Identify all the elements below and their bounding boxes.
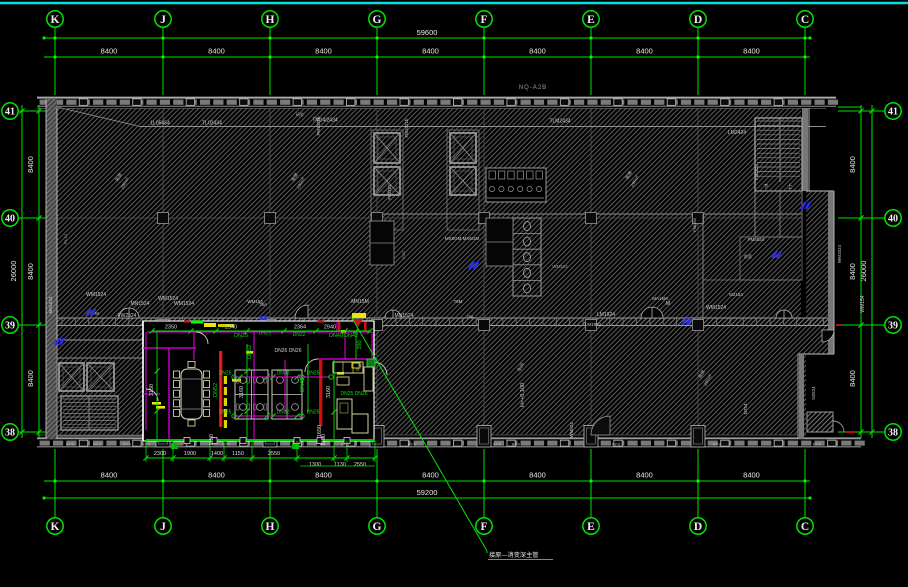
- svg-text:BY-0: BY-0: [341, 443, 349, 447]
- svg-text:3160: 3160: [326, 386, 332, 398]
- svg-text:M2154: M2154: [729, 292, 743, 297]
- svg-text:J: J: [160, 521, 166, 533]
- svg-text:3160: 3160: [239, 386, 245, 398]
- svg-text:WM524: WM524: [552, 264, 568, 269]
- svg-text:DN25: DN25: [307, 371, 320, 377]
- svg-text:H: H: [266, 521, 275, 533]
- svg-text:BY-0: BY-0: [66, 443, 74, 447]
- svg-text:FM2624: FM2624: [748, 237, 765, 242]
- svg-text:TLM2434: TLM2434: [549, 119, 570, 125]
- svg-text:上: 上: [787, 183, 792, 190]
- svg-text:MN15M: MN15M: [351, 299, 369, 305]
- svg-text:DN32: DN32: [293, 332, 306, 338]
- svg-text:8400: 8400: [26, 370, 35, 387]
- svg-text:BY-0: BY-0: [222, 443, 230, 447]
- svg-text:1300: 1300: [309, 462, 321, 468]
- svg-text:BY-0: BY-0: [493, 443, 501, 447]
- svg-text:DN25: DN25: [307, 410, 320, 416]
- svg-text:MA15M: MA15M: [652, 296, 668, 301]
- svg-text:下: 下: [763, 184, 768, 190]
- svg-text:FW2: FW2: [401, 250, 406, 259]
- svg-text:DN26 DN26: DN26 DN26: [275, 348, 302, 354]
- svg-text:8400: 8400: [848, 263, 857, 280]
- svg-text:M: M: [95, 311, 99, 316]
- svg-text:40: 40: [888, 214, 898, 225]
- svg-text:2540: 2540: [225, 325, 237, 331]
- svg-text:NQ-A2B: NQ-A2B: [519, 85, 547, 91]
- svg-text:26000: 26000: [9, 261, 18, 282]
- svg-text:LM2424: LM2424: [728, 130, 746, 136]
- svg-text:8400: 8400: [208, 471, 225, 480]
- svg-text:BY-0: BY-0: [408, 443, 416, 447]
- svg-text:39: 39: [888, 321, 898, 332]
- svg-text:1900: 1900: [184, 451, 196, 457]
- svg-text:DN25: DN25: [219, 410, 232, 416]
- svg-text:WM154: WM154: [247, 299, 263, 304]
- svg-text:D: D: [694, 14, 702, 26]
- svg-text:38: 38: [888, 428, 898, 439]
- svg-text:G: G: [373, 521, 382, 533]
- svg-text:8400: 8400: [636, 471, 653, 480]
- svg-text:38: 38: [5, 428, 15, 439]
- svg-text:8400: 8400: [422, 471, 439, 480]
- svg-text:BY-0: BY-0: [142, 443, 150, 447]
- svg-text:2550: 2550: [268, 451, 280, 457]
- svg-text:8400: 8400: [848, 156, 857, 173]
- svg-text:1L05454: 1L05454: [150, 121, 170, 127]
- svg-text:BY-0: BY-0: [813, 443, 821, 447]
- svg-text:D: D: [694, 521, 702, 533]
- svg-text:C: C: [801, 521, 809, 533]
- svg-text:BY-0: BY-0: [512, 443, 520, 447]
- svg-text:TL02434: TL02434: [202, 121, 222, 127]
- svg-text:41: 41: [888, 107, 898, 118]
- svg-text:N754: N754: [743, 403, 748, 414]
- svg-text:DN25: DN25: [234, 333, 248, 339]
- svg-text:WM1524: WM1524: [158, 296, 178, 302]
- svg-text:LM1924: LM1924: [585, 322, 602, 327]
- svg-text:FM1021b: FM1021b: [316, 116, 321, 136]
- svg-text:BY-0: BY-0: [93, 443, 101, 447]
- svg-text:F: F: [480, 14, 487, 26]
- svg-text:8400: 8400: [422, 47, 439, 56]
- svg-text:WM154: WM154: [860, 295, 866, 312]
- svg-text:FM1825: FM1825: [754, 164, 759, 180]
- svg-text:8400: 8400: [636, 47, 653, 56]
- svg-text:2300: 2300: [154, 451, 166, 457]
- svg-text:39: 39: [5, 321, 15, 332]
- svg-text:DN25 DN26: DN25 DN26: [341, 391, 368, 397]
- svg-text:8400: 8400: [743, 471, 760, 480]
- svg-text:41: 41: [5, 107, 15, 118]
- svg-text:8400: 8400: [26, 263, 35, 280]
- svg-text:2940: 2940: [324, 325, 336, 331]
- svg-text:DN52: DN52: [213, 383, 219, 397]
- svg-text:LM1924: LM1924: [597, 312, 615, 318]
- svg-text:40: 40: [5, 214, 15, 225]
- svg-text:8400: 8400: [101, 471, 118, 480]
- svg-text:8400: 8400: [529, 47, 546, 56]
- svg-text:1150: 1150: [321, 434, 327, 446]
- svg-text:C: C: [801, 14, 809, 26]
- svg-text:M: M: [666, 301, 670, 307]
- svg-text:DN32: DN32: [277, 371, 290, 377]
- svg-text:H: H: [266, 14, 275, 26]
- svg-text:N2524: N2524: [811, 386, 816, 400]
- svg-text:BY-0: BY-0: [713, 443, 721, 447]
- svg-text:2550: 2550: [354, 462, 366, 468]
- svg-text:8400: 8400: [315, 471, 332, 480]
- svg-text:J: J: [160, 14, 166, 26]
- svg-text:1150: 1150: [209, 434, 215, 446]
- svg-text:K: K: [51, 521, 60, 533]
- svg-text:MN1524: MN1524: [131, 301, 150, 307]
- svg-text:前室: 前室: [744, 253, 752, 259]
- svg-text:1150: 1150: [232, 451, 244, 457]
- svg-text:DN52: DN52: [247, 345, 253, 359]
- svg-text:WM1524: WM1524: [837, 245, 842, 264]
- svg-text:DN25: DN25: [259, 331, 272, 337]
- svg-text:75A: 75A: [466, 314, 473, 319]
- svg-text:1130: 1130: [334, 462, 346, 468]
- svg-text:FW2524: FW2524: [118, 313, 137, 319]
- svg-text:FM/254: FM/254: [692, 217, 697, 231]
- svg-text:WM1524: WM1524: [706, 305, 726, 311]
- svg-text:FM1021b: FM1021b: [404, 118, 409, 138]
- svg-text:390: 390: [357, 340, 363, 349]
- svg-text:DN32: DN32: [277, 410, 290, 416]
- svg-text:BY-0: BY-0: [123, 443, 131, 447]
- svg-text:59600: 59600: [417, 28, 438, 37]
- svg-text:1400: 1400: [211, 451, 223, 457]
- svg-text:F: F: [480, 521, 487, 533]
- svg-text:3150: 3150: [149, 384, 155, 396]
- svg-text:MX8GM MX6GM: MX8GM MX6GM: [445, 236, 480, 241]
- svg-text:BY-0: BY-0: [612, 443, 620, 447]
- svg-text:8400: 8400: [848, 370, 857, 387]
- svg-text:WM524: WM524: [569, 422, 574, 438]
- svg-text:接原—消变深主管: 接原—消变深主管: [489, 551, 539, 559]
- svg-text:59200: 59200: [417, 488, 438, 497]
- svg-text:2350: 2350: [165, 325, 177, 331]
- svg-text:26000: 26000: [859, 261, 868, 282]
- svg-text:8400: 8400: [208, 47, 225, 56]
- svg-text:DN25: DN25: [219, 371, 232, 377]
- svg-text:75M: 75M: [454, 299, 463, 304]
- svg-text:8400: 8400: [101, 47, 118, 56]
- svg-text:F5-01: F5-01: [63, 233, 68, 244]
- svg-text:8400: 8400: [743, 47, 760, 56]
- svg-text:2364: 2364: [294, 325, 306, 331]
- svg-text:H=+0.100: H=+0.100: [520, 383, 526, 407]
- svg-text:WM1524: WM1524: [86, 292, 106, 298]
- svg-text:FL0762: FL0762: [387, 184, 392, 200]
- svg-text:8400: 8400: [315, 47, 332, 56]
- svg-text:E: E: [587, 521, 595, 533]
- svg-text:G: G: [373, 14, 382, 26]
- svg-text:DN40: DN40: [300, 378, 306, 392]
- svg-text:E: E: [587, 14, 595, 26]
- svg-text:8400: 8400: [529, 471, 546, 480]
- svg-text:8400: 8400: [26, 156, 35, 173]
- svg-text:研发: 研发: [296, 111, 304, 117]
- svg-text:MN1524: MN1524: [395, 313, 414, 319]
- svg-text:K: K: [51, 14, 60, 26]
- svg-text:DN40: DN40: [329, 333, 343, 339]
- svg-text:MN1524: MN1524: [48, 296, 53, 314]
